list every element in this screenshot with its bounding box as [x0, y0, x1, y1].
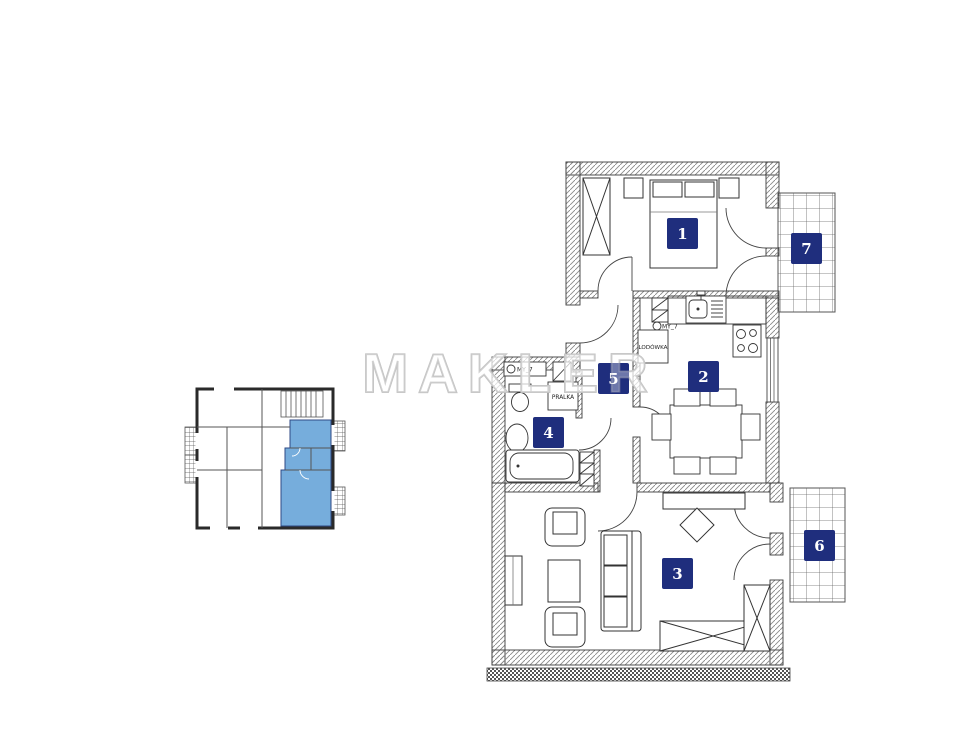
vent-shaft-icon — [580, 452, 594, 486]
counter-sink-icon — [668, 291, 766, 324]
vent-label-kitchen: MY_7 — [662, 324, 678, 331]
svg-text:6: 6 — [814, 537, 824, 555]
foundation-strip — [487, 668, 790, 681]
svg-text:3: 3 — [672, 565, 682, 583]
side-table-icon — [680, 508, 714, 542]
armchair-icon — [545, 508, 585, 546]
svg-text:1: 1 — [677, 225, 687, 243]
floor-plan-drawing: LODÓWKA PRALKA MY_7 MY_7 — [0, 0, 980, 735]
nightstand-icon — [624, 178, 643, 198]
sofa-icon — [601, 531, 641, 631]
washbasin-icon — [505, 424, 528, 452]
stove-icon — [733, 325, 761, 357]
svg-text:7: 7 — [801, 240, 811, 258]
svg-text:2: 2 — [698, 368, 708, 386]
floorplan-page: LODÓWKA PRALKA MY_7 MY_7 — [0, 0, 980, 735]
wardrobe-icon — [583, 178, 610, 255]
dining-set-icon — [652, 389, 760, 474]
nightstand-icon — [719, 178, 739, 198]
armchair-icon — [545, 607, 585, 647]
coffee-table-icon — [548, 560, 580, 602]
room-label-6: 6 — [804, 530, 835, 561]
overview-plan — [185, 388, 345, 530]
window-dining-east — [767, 338, 778, 402]
svg-text:4: 4 — [543, 424, 553, 442]
tv-board-icon — [663, 493, 745, 509]
bedroom-furniture — [583, 178, 739, 268]
bathtub-icon — [506, 450, 579, 482]
room-label-1: 1 — [667, 218, 698, 249]
room-label-4: 4 — [533, 417, 564, 448]
room-label-2: 2 — [688, 361, 719, 392]
room-label-3: 3 — [662, 558, 693, 589]
watermark-overlay-r: MAKLER — [362, 342, 657, 404]
room-label-7: 7 — [791, 233, 822, 264]
radiator-icon — [505, 556, 522, 605]
living-room-furniture — [505, 493, 770, 651]
wardrobe-icon — [744, 585, 770, 651]
